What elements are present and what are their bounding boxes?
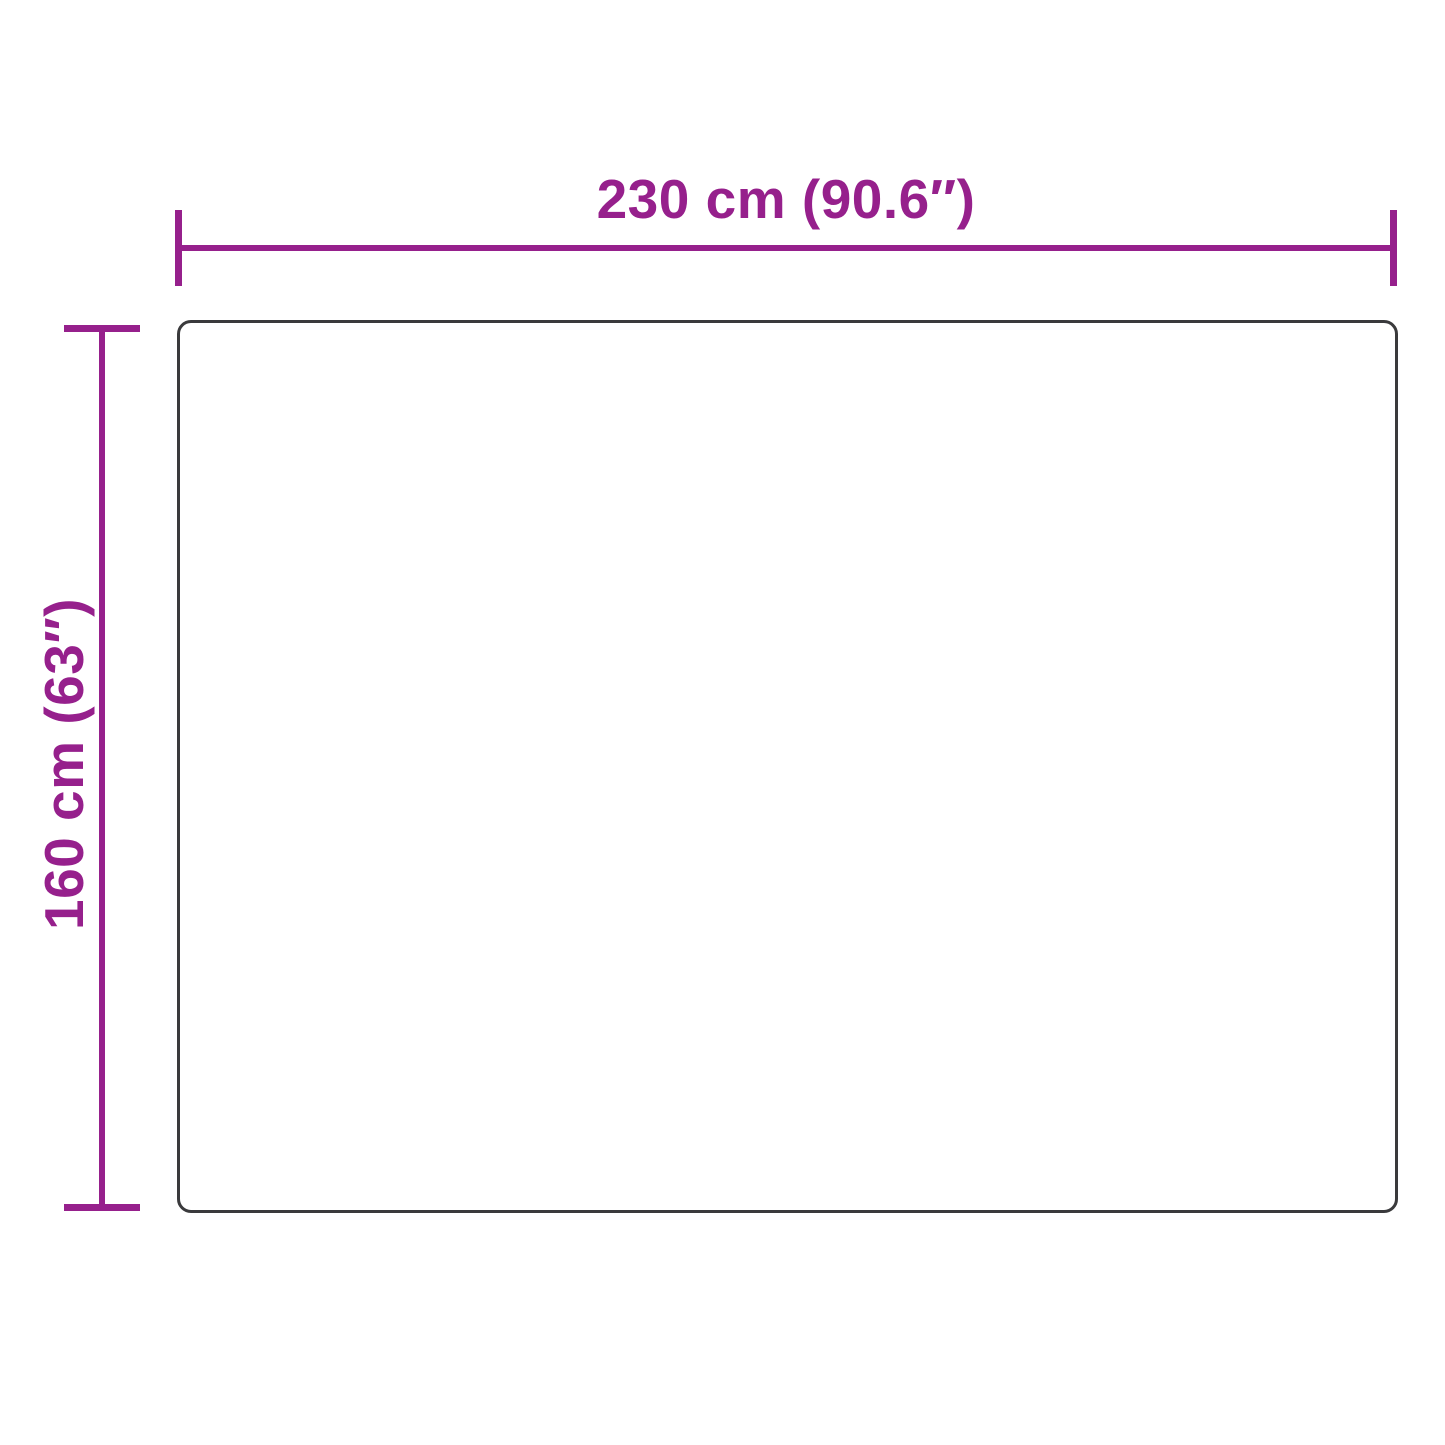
width-dimension-label: 230 cm (90.6″) [177,171,1395,227]
dimension-diagram: 230 cm (90.6″) 160 cm (63″) [0,0,1445,1445]
product-outline-rectangle [177,320,1398,1213]
height-dimension-bottom-cap [64,1204,140,1211]
width-dimension-line [178,245,1394,251]
height-dimension-line [99,328,105,1208]
height-dimension-top-cap [64,325,140,332]
width-dimension-right-cap [1390,210,1397,286]
height-dimension-label: 160 cm (63″) [32,598,96,930]
width-dimension-left-cap [175,210,182,286]
